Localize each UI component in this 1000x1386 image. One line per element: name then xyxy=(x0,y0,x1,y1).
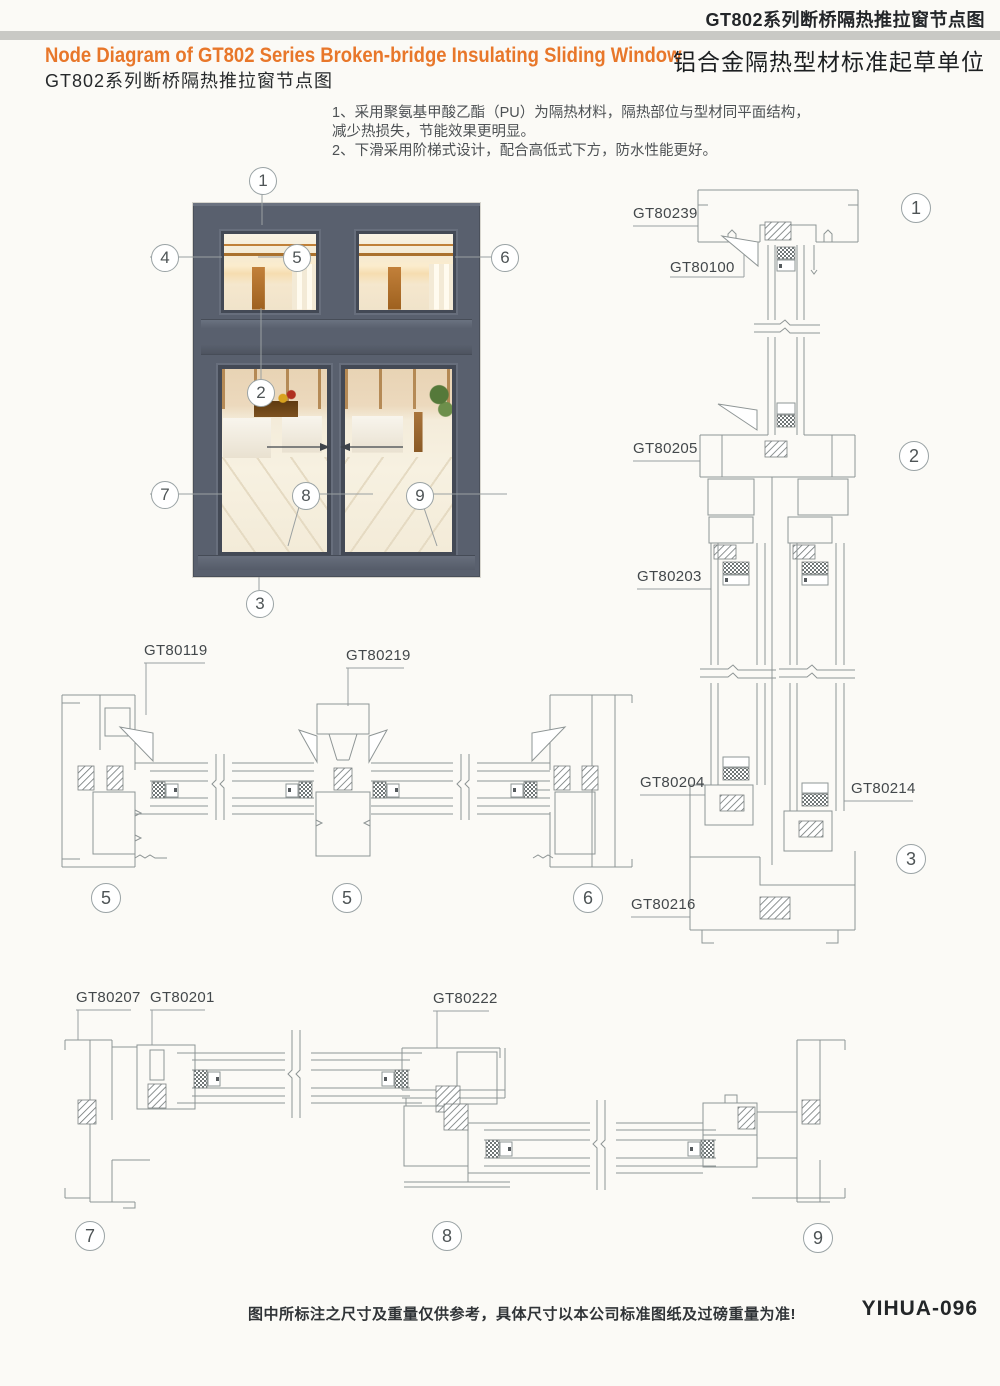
window-callout-7: 7 xyxy=(151,481,179,509)
profile-label-gt80119: GT80119 xyxy=(144,642,208,659)
catalog-page: GT802系列断桥隔热推拉窗节点图 Node Diagram of GT802 … xyxy=(0,0,1000,1386)
section-marker-1: 1 xyxy=(901,193,931,223)
profile-label-gt80219: GT80219 xyxy=(346,647,411,664)
profile-label-gt80207: GT80207 xyxy=(76,989,141,1006)
section-marker-5a: 5 xyxy=(91,883,121,913)
footer-disclaimer: 图中所标注之尺寸及重量仅供参考，具体尺寸以本公司标准图纸及过磅重量为准! xyxy=(248,1303,796,1324)
slide-arrow-left-icon xyxy=(340,443,350,451)
window-callout-3: 3 xyxy=(246,590,274,618)
profile-label-gt80222: GT80222 xyxy=(433,990,498,1007)
org-subtitle: 铝合金隔热型材标准起草单位 xyxy=(673,43,985,77)
profile-label-gt80205: GT80205 xyxy=(633,440,698,457)
window-callout-6: 6 xyxy=(491,244,519,272)
window-callout-8: 8 xyxy=(292,482,320,510)
profile-label-gt80203: GT80203 xyxy=(637,568,702,585)
header-divider-bar xyxy=(0,31,1000,40)
section-marker-8: 8 xyxy=(432,1221,462,1251)
note-line-3: 2、下滑采用阶梯式设计，配合高低式下方，防水性能更好。 xyxy=(332,142,810,161)
window-callout-4: 4 xyxy=(151,244,179,272)
window-leader-lines xyxy=(140,165,520,615)
slide-arrow-right-icon xyxy=(320,443,330,451)
section-marker-3: 3 xyxy=(896,844,926,874)
notes-block: 1、采用聚氨基甲酸乙酯（PU）为隔热材料，隔热部位与型材同平面结构， 减少热损失… xyxy=(332,104,810,161)
doc-title: GT802系列断桥隔热推拉窗节点图 xyxy=(705,6,985,32)
profile-label-gt80100: GT80100 xyxy=(670,259,735,276)
profile-label-gt80214: GT80214 xyxy=(851,780,916,797)
section-marker-6: 6 xyxy=(573,883,603,913)
footer-page-code: YIHUA-096 xyxy=(862,1297,978,1321)
section-marker-5b: 5 xyxy=(332,883,362,913)
window-callout-1: 1 xyxy=(249,167,277,195)
section-marker-9: 9 xyxy=(803,1223,833,1253)
window-callout-2: 2 xyxy=(247,379,275,407)
note-line-1: 1、采用聚氨基甲酸乙酯（PU）为隔热材料，隔热部位与型材同平面结构， xyxy=(332,104,810,123)
page-title-en: Node Diagram of GT802 Series Broken-brid… xyxy=(45,44,681,68)
profile-label-gt80239: GT80239 xyxy=(633,205,698,222)
profile-label-gt80216: GT80216 xyxy=(631,896,696,913)
page-title-cn: GT802系列断桥隔热推拉窗节点图 xyxy=(45,67,333,93)
section-marker-7: 7 xyxy=(75,1221,105,1251)
section-drawing-horizontal-5-5-6 xyxy=(55,640,635,890)
section-marker-2: 2 xyxy=(899,441,929,471)
note-line-2: 减少热损失，节能效果更明显。 xyxy=(332,123,810,142)
window-callout-9: 9 xyxy=(406,482,434,510)
window-callout-5: 5 xyxy=(283,244,311,272)
profile-label-gt80204: GT80204 xyxy=(640,774,705,791)
profile-label-gt80201: GT80201 xyxy=(150,989,215,1006)
